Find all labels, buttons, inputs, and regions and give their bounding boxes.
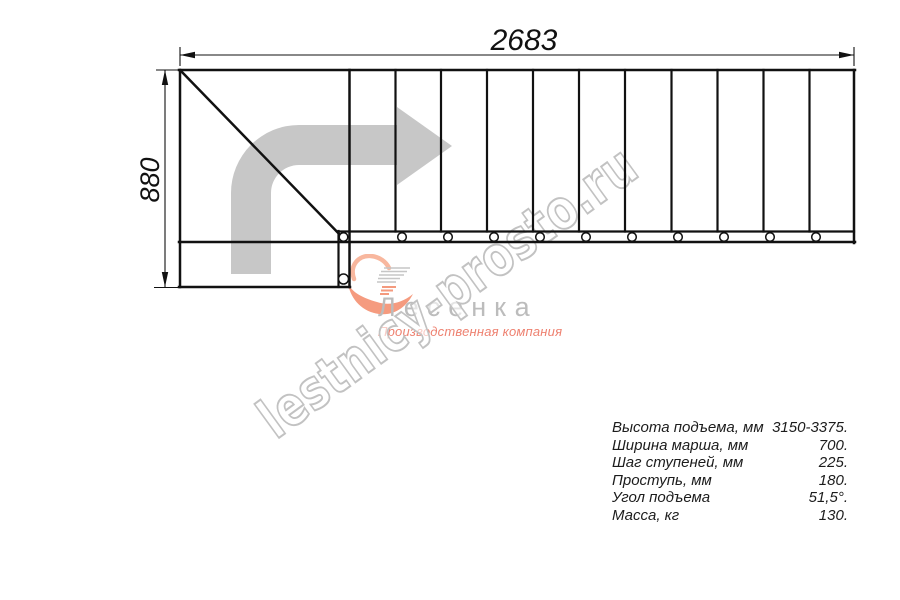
spec-label: Угол подъема bbox=[612, 489, 710, 507]
height-dimension-label: 880 bbox=[135, 157, 165, 202]
spec-value: 51,5°. bbox=[809, 489, 848, 507]
stair-outline bbox=[179, 70, 855, 287]
spec-label: Шаг ступеней, мм bbox=[612, 454, 743, 472]
spec-row-mass: Масса, кг 130. bbox=[612, 507, 848, 525]
spec-value: 180. bbox=[819, 472, 848, 490]
spec-value: 700. bbox=[819, 437, 848, 455]
spec-label: Ширина марша, мм bbox=[612, 437, 748, 455]
stair-drawing-page: Лесенка Производственная компания lestni… bbox=[0, 0, 900, 600]
fastener-circles bbox=[339, 233, 821, 284]
spec-value: 130. bbox=[819, 507, 848, 525]
spec-row-step-pitch: Шаг ступеней, мм 225. bbox=[612, 454, 848, 472]
spec-row-flight-width: Ширина марша, мм 700. bbox=[612, 437, 848, 455]
spec-row-angle: Угол подъема 51,5°. bbox=[612, 489, 848, 507]
direction-arrow-icon bbox=[231, 107, 452, 274]
spec-label: Проступь, мм bbox=[612, 472, 712, 490]
width-dimension-label: 2683 bbox=[490, 24, 558, 57]
spec-row-height: Высота подъема, мм 3150-3375. bbox=[612, 419, 848, 437]
spec-row-tread: Проступь, мм 180. bbox=[612, 472, 848, 490]
spec-value: 225. bbox=[819, 454, 848, 472]
spec-label: Масса, кг bbox=[612, 507, 679, 525]
spec-label: Высота подъема, мм bbox=[612, 419, 764, 437]
specs-table: Высота подъема, мм 3150-3375. Ширина мар… bbox=[612, 419, 848, 524]
spec-value: 3150-3375. bbox=[772, 419, 848, 437]
tread-lines bbox=[339, 70, 855, 287]
